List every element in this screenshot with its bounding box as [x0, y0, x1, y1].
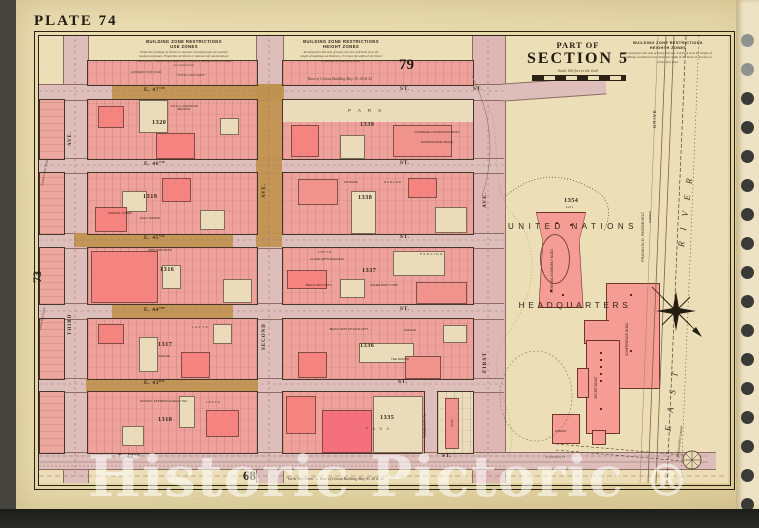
zone-note-3-title: BUILDING ZONE RESTRICTIONSHEIGHTH ZONES — [622, 41, 714, 51]
building-label-lofts-1337: L O F T S — [318, 251, 331, 254]
block-number-1318: 1318 — [158, 416, 172, 423]
building-label-lofts-1317: LOFTS — [192, 326, 209, 329]
avenue-label-second-ave: AVE. — [262, 178, 268, 202]
building-label-fisher-body: FISHER BODY CORP. — [370, 284, 398, 287]
road-label-under: (UNDER) — [649, 200, 652, 234]
zone-note-1-body: Properties fronting on Streets or Avenue… — [136, 50, 232, 67]
avenue-label-third: THIRD — [68, 303, 74, 345]
park-label-east: PARK — [451, 408, 454, 438]
zone-note-2-body: All properties this side of heavy line a… — [300, 50, 382, 63]
park-label-1335: P A R K — [366, 428, 391, 432]
building-label-beaux-arts: BEAUX ARTS APTS — [306, 284, 331, 287]
watermark: Historic Pictoric ® — [88, 444, 690, 510]
avenue-label-third-ave: AVE. — [68, 126, 74, 150]
block-number-1338: 1338 — [358, 194, 372, 201]
road-label-drive: DRIVE — [652, 104, 657, 134]
building-label-conference: CONFERENCE BLDG. — [626, 303, 630, 375]
building-label-general-assembly: GENERAL ASSEMBLY BLDG. — [551, 238, 555, 304]
block-number-1335: 1335 — [380, 414, 394, 421]
building-label-secretariat: SECRETARIAT — [595, 356, 599, 420]
building-label-lofts-1318: LOFTS — [206, 401, 221, 404]
zone-note-1-side: EASTERN POST ROAD — [131, 71, 161, 74]
avenue-label-first: FIRST — [482, 340, 488, 384]
building-label-carnegie: CARNEGIE FOUNDATION BLDG — [410, 131, 464, 134]
block-number-1317: 1317 — [158, 341, 172, 348]
compass-rose-icon — [652, 287, 702, 337]
street-label-e44-st: ST. — [400, 306, 410, 312]
street-label-e47: E. 47TH — [144, 86, 165, 93]
block-number-1319: 1319 — [143, 193, 157, 200]
street-label-e47-st: ST. — [400, 86, 410, 92]
street-label-e44: E. 44TH — [144, 306, 165, 313]
building-label-railway-express: RAILWAY EXPRESS AGENCY INC. — [138, 400, 190, 403]
park-label: P A R K — [348, 108, 384, 113]
zone-note-3-body: All properties this side of heavy line a… — [624, 51, 712, 64]
building-label-allied-arts: ALLIED ARTS BUILDING — [310, 258, 344, 261]
road-label-fdr: FRANKLIN D. ROOSEVELT — [641, 186, 646, 288]
block-number-1336: 1336 — [360, 342, 374, 349]
block-number-1339: 1339 — [360, 121, 374, 128]
building-label-storage: STORAGE — [344, 181, 358, 184]
un-label-line2: HEADQUARTERS — [508, 301, 642, 311]
street-label-e46: E. 46TH — [144, 160, 165, 167]
street-label-tudor-city: TUDOR CITY PL. — [424, 402, 428, 448]
building-label-garage-1317: GARAGE — [158, 355, 170, 358]
title-section: SECTION 5 — [524, 50, 632, 68]
building-label-beaux-studios: BEAUX ARTS STUDIOS APTS — [326, 328, 372, 331]
scale-bar — [532, 75, 626, 81]
street-label-e45: E. 45TH — [144, 234, 165, 241]
street-label-e43-st: ST. — [398, 379, 408, 385]
un-label-line1: UNITED NATIONS — [506, 222, 640, 231]
street-label-e43: E. 43RD — [144, 379, 165, 386]
binding-holes — [741, 34, 754, 47]
building-label-intl-peace: INTERNATIONAL PEACE — [410, 141, 464, 144]
building-label-central-tower: CENTRAL TOWER — [108, 212, 132, 215]
building-label-ymca: Y.M.C.A. RAILROAD BRANCH — [164, 105, 204, 112]
perforated-binding-strip — [736, 0, 759, 509]
building-label-library: LIBRARY — [555, 430, 567, 433]
building-label-parking: PARKING — [420, 253, 444, 256]
lot-label: Lot 1 — [566, 205, 573, 209]
building-label-garage-1338: GARAGE — [384, 181, 402, 184]
avenue-label-second: SECOND — [262, 313, 268, 361]
adjacent-plate-number-left: 73 — [31, 271, 45, 283]
zone-note-1-farm: "TURTLE BAY FARM" — [176, 74, 205, 78]
atlas-plate-scan: PLATE 74 — [0, 0, 759, 528]
backdrop-bottom — [0, 509, 759, 528]
title-scale: Scale 160 feet to the Inch — [538, 69, 618, 74]
adjacent-plate-number-top: 79 — [399, 57, 414, 74]
street-label-e47-st2: ST. — [473, 86, 483, 92]
building-label-the-manor: THE MANOR — [391, 358, 409, 361]
street-label-e46-st: ST. — [400, 160, 410, 166]
survey-note-top: Base of Census Building May 30. 28 & 32 — [308, 77, 372, 81]
avenue-label-first-ave: AVE. — [482, 188, 488, 212]
plate-title: PLATE 74 — [34, 13, 118, 30]
backdrop-left — [0, 0, 16, 528]
block-number-1316: 1316 — [160, 266, 174, 273]
block-number-1320: 1320 — [152, 119, 166, 126]
block-number-1354: 1354 — [564, 197, 578, 204]
building-label-garage-1336: GARAGE — [404, 329, 416, 332]
street-label-e45-st: ST. — [400, 234, 410, 240]
building-label-daily-mirror: DAILY MIRROR — [140, 217, 160, 220]
building-label-printers: PRINTERS BLDG — [148, 249, 172, 252]
block-number-1337: 1337 — [362, 267, 376, 274]
zone-note-2-title: BUILDING ZONE RESTRICTIONSHEIGHT ZONES — [298, 39, 384, 50]
zone-note-1-title: BUILDING ZONE RESTRICTIONSUSE ZONES — [134, 39, 234, 50]
